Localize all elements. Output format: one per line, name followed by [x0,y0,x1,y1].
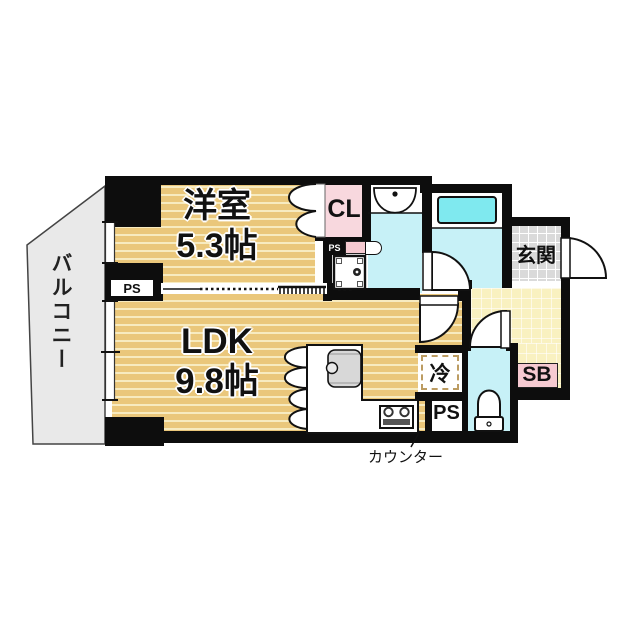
ldk-area: 9.8帖 [112,362,322,402]
fridge-label: 冷 [430,358,451,388]
wall-entrance-top [505,217,570,226]
counter-label: カウンター [368,446,448,467]
wall-bath-left-stub [422,176,432,253]
wall-bottom [161,431,518,443]
wall-above-fridge [415,345,462,353]
fridge-space: 冷 [421,355,459,390]
toilet-floor [467,348,510,433]
ps-wall-box: PS [111,280,153,296]
wall-door-post [458,288,468,301]
wall-under-shoebox [512,388,570,400]
bathtub-band [430,191,502,228]
wall-right-upper [561,226,570,238]
ps-wall-label: PS [123,281,140,296]
wall-ps-kitchen-left [425,400,432,433]
wall-right-lower [561,278,570,400]
shelf-pink [345,241,366,254]
wall-corner-bottomleft [105,417,164,446]
washbasin-band [368,182,422,213]
entrance-step [510,281,561,288]
door-cap [365,241,382,255]
wall-bath-right [502,184,512,288]
ps-kitchen-label: PS [432,402,461,425]
sliding-door-band [161,283,327,294]
hallway-upper [471,288,561,343]
wall-slider-post [327,283,338,295]
wall-below-fridge [415,392,468,401]
floor-plan: バルコニー 洋室 5.3帖 LDK 9.8帖 CL 玄関 SB 冷 PS PS … [0,0,640,640]
shoe-box-label: SB [516,363,558,387]
western-room-name: 洋室 [117,186,317,226]
ps-small-label: PS [324,243,345,254]
ldk-name: LDK [112,322,322,362]
wall-bath-top [420,184,512,193]
balcony-label: バルコニー [45,252,75,422]
western-room-area: 5.3帖 [117,226,317,266]
closet-label: CL [322,195,366,224]
wall-washroom-bottom [327,288,420,300]
entrance-label: 玄関 [512,239,560,268]
